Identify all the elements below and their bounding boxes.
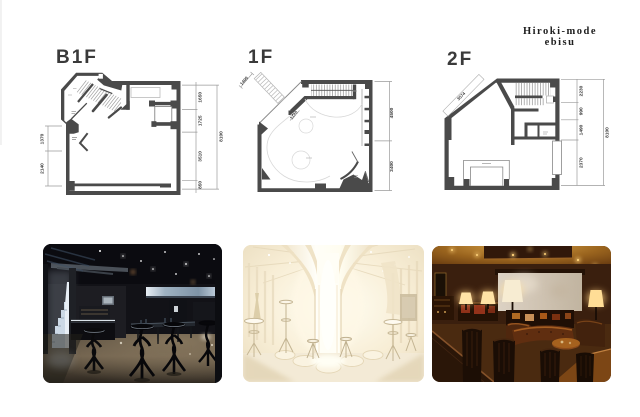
svg-text:850: 850 <box>198 181 204 189</box>
svg-text:1370: 1370 <box>40 133 46 144</box>
svg-text:1490: 1490 <box>579 124 585 135</box>
svg-text:2140: 2140 <box>40 163 46 174</box>
svg-text:3510: 3510 <box>198 151 204 162</box>
svg-text:8100: 8100 <box>605 127 611 138</box>
svg-text:1400: 1400 <box>239 75 249 86</box>
svg-text:4500: 4500 <box>389 107 395 118</box>
svg-text:1725: 1725 <box>198 115 204 126</box>
svg-text:8100: 8100 <box>219 131 225 142</box>
svg-text:3574: 3574 <box>456 91 467 102</box>
svg-text:2230: 2230 <box>579 85 585 96</box>
svg-text:3400: 3400 <box>389 161 395 172</box>
svg-text:2370: 2370 <box>579 157 585 168</box>
svg-text:990: 990 <box>579 107 585 115</box>
svg-text:1650: 1650 <box>198 92 204 103</box>
